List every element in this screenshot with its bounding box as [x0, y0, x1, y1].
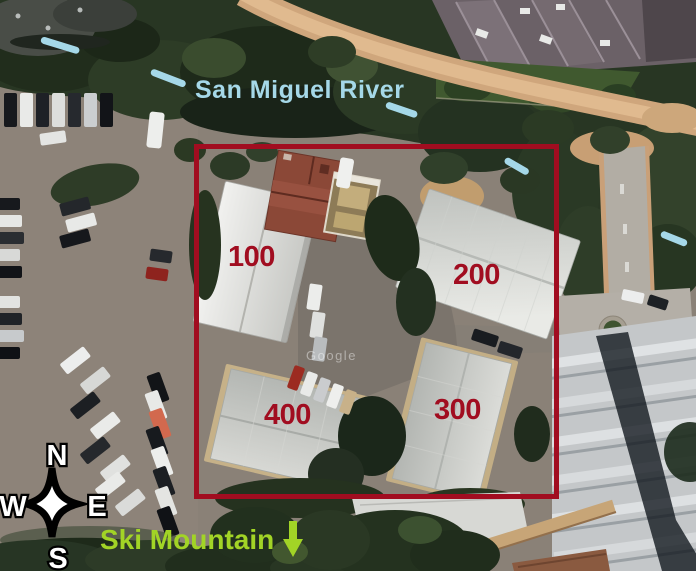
highlight-rectangle — [194, 144, 559, 499]
compass-rose-icon: N W E S — [0, 435, 120, 571]
compass-star — [27, 468, 78, 537]
satellite-map: Google — [0, 0, 696, 571]
compass-east-label: E — [87, 491, 106, 523]
down-arrow-icon — [281, 519, 305, 559]
building-label-300: 300 — [434, 396, 481, 425]
compass-north-label: N — [47, 440, 68, 472]
ski-mountain-label: Ski Mountain — [100, 526, 274, 554]
compass-south-label: S — [48, 543, 67, 571]
building-label-200: 200 — [453, 261, 500, 290]
river-label: San Miguel River — [195, 76, 404, 105]
ski-mountain-annotation: Ski Mountain — [100, 526, 305, 559]
compass-west-label: W — [0, 491, 27, 523]
building-label-400: 400 — [264, 401, 311, 430]
building-label-100: 100 — [228, 243, 275, 272]
